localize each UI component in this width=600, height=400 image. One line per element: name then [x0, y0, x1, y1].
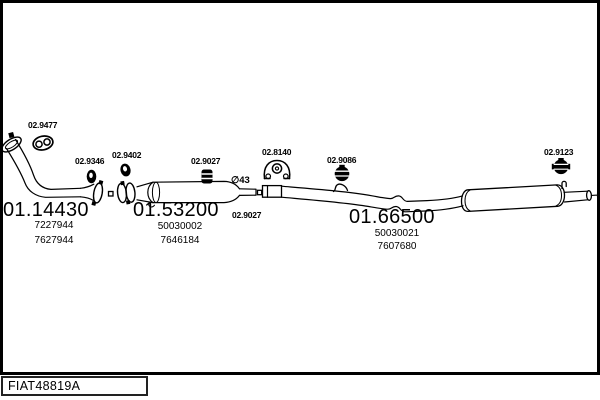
fitting-code: 02.9027 [191, 157, 220, 166]
part-number: 50030002 [145, 222, 215, 232]
band-clamp-icon [335, 165, 350, 181]
part-number: 7627944 [19, 236, 89, 246]
bolt-clamp-icon [202, 170, 213, 184]
rear-muffler-drawing [462, 181, 598, 211]
fitting-code: 02.9086 [327, 156, 356, 165]
fitting-code: 02.9123 [544, 148, 573, 157]
part-number: 7646184 [145, 236, 215, 246]
part-number: 50030021 [362, 229, 432, 239]
muffler-hanger-hook [562, 181, 566, 188]
fitting-code: 02.9027 [232, 211, 261, 220]
section-code-front-pipe: 01.14430 [3, 200, 89, 220]
exhaust-parts-diagram: 02.9477 02.9346 02.9402 02.9027 02.8140 … [0, 0, 600, 400]
rubber-mount-icon [264, 161, 289, 179]
drawing-code: FIAT48819A [8, 379, 80, 393]
part-number: 7227944 [19, 221, 89, 231]
part-number: 7607680 [362, 242, 432, 252]
pipe-hanger-hook [334, 184, 348, 191]
drawing-code-box: FIAT48819A [1, 376, 148, 396]
fitting-code: 02.8140 [262, 148, 291, 157]
exhaust-drawing [0, 0, 600, 400]
ring-clamp-icon [87, 170, 97, 184]
pipe-diameter-label: ∅43 [231, 176, 250, 186]
fitting-code: 02.9477 [28, 121, 57, 130]
ring-clamp-icon [119, 162, 132, 177]
section-code-rear-muffler: 01.66500 [349, 207, 435, 227]
gasket-icon [32, 134, 54, 151]
section-code-centre-muffler: 01.53200 [133, 200, 219, 220]
fitting-code: 02.9402 [112, 151, 141, 160]
fitting-code: 02.9346 [75, 157, 104, 166]
flange-joint-drawing [109, 181, 136, 205]
band-clamp-icon [552, 158, 570, 174]
